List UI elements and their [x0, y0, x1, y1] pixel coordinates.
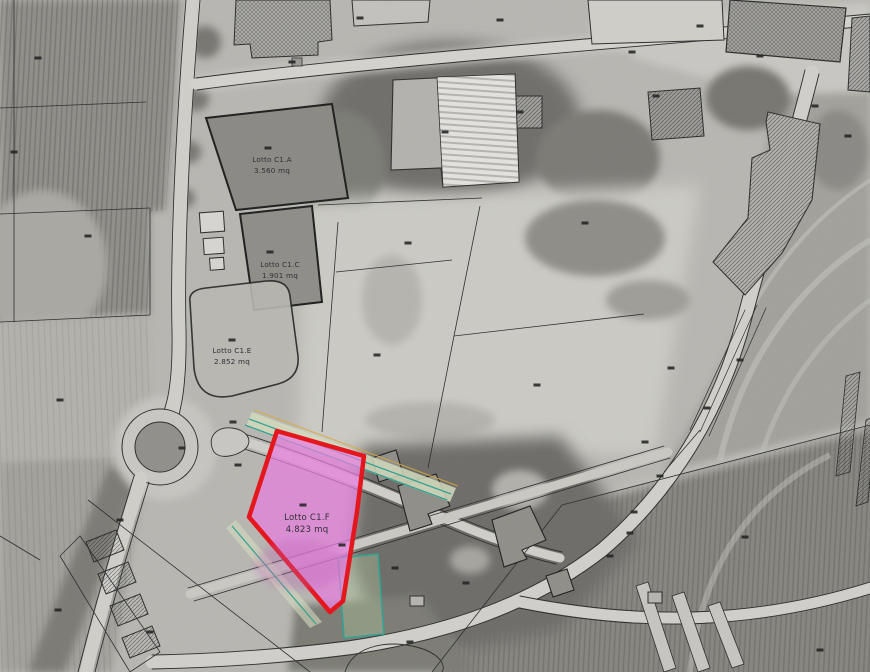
map-canvas: Lotto C1.A 3.560 mq Lotto C1.C 1.901 mq … [0, 0, 870, 672]
cadastral-map: Lotto C1.A 3.560 mq Lotto C1.C 1.901 mq … [0, 0, 870, 672]
photo-grain-overlay [0, 0, 870, 672]
